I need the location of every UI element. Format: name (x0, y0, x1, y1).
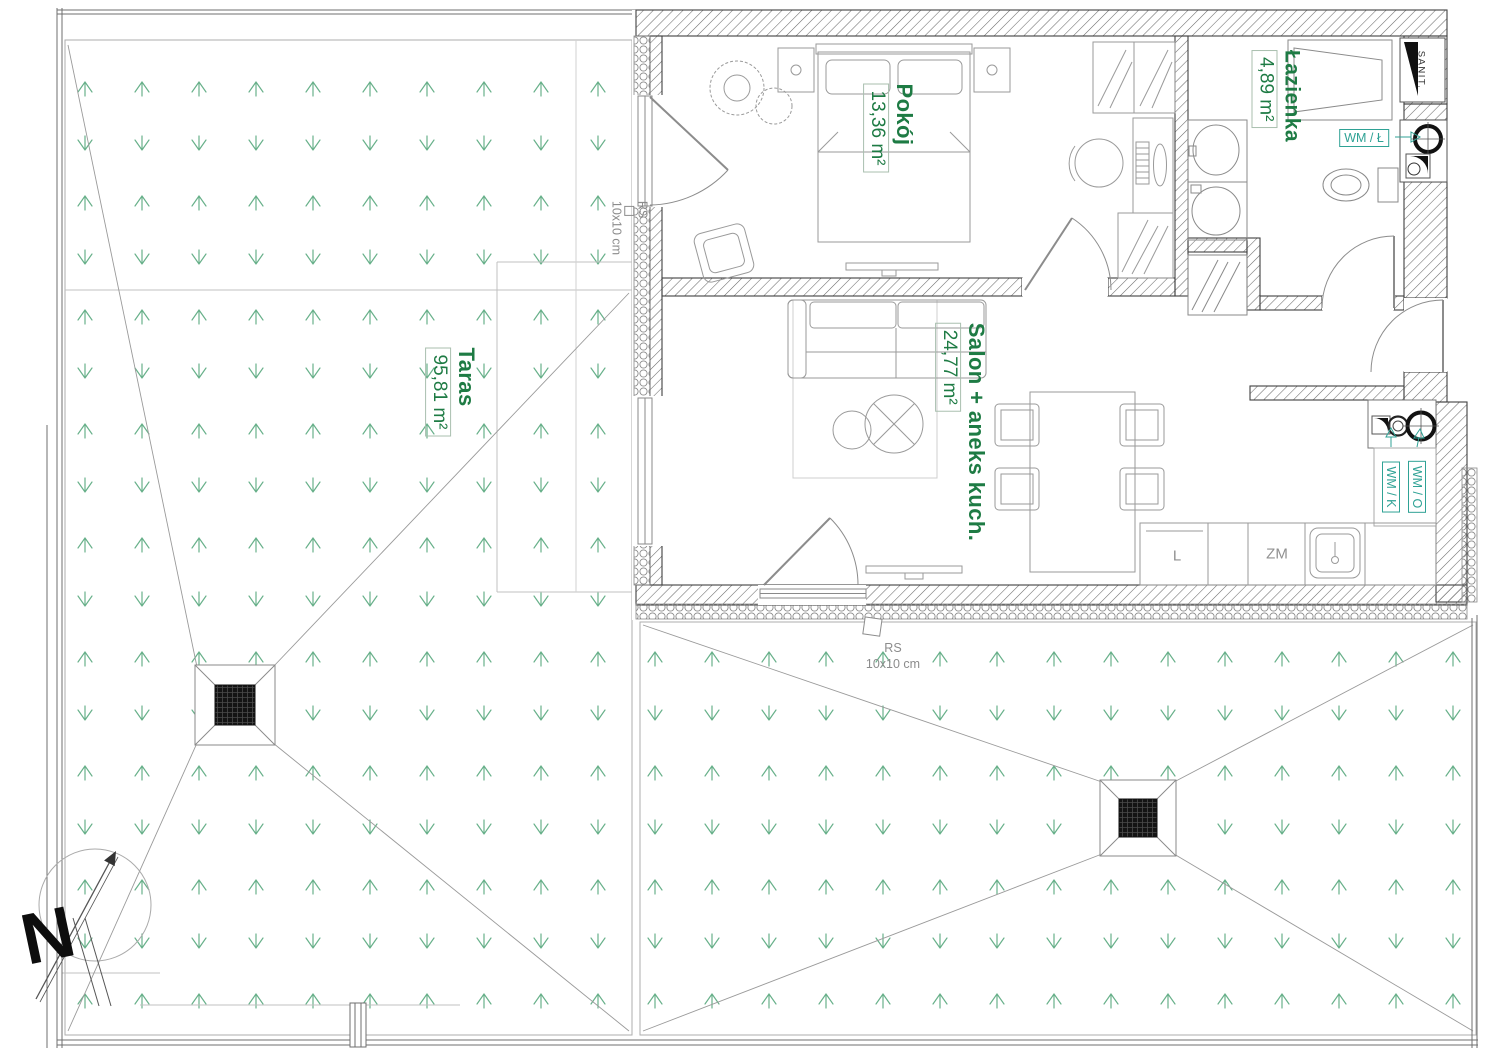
dishwasher-label: ZM (1266, 546, 1288, 563)
rs-drain-squares (863, 617, 882, 636)
room-name: Łazienka (1279, 50, 1304, 142)
sanitary-shaft-label: SANIT. (1416, 51, 1427, 90)
room-label-salon: Salon + aneks kuch. 24,77 m² (935, 323, 989, 542)
kitchen-vents (1368, 400, 1439, 526)
vent-label-wm-o: WM / O (1408, 461, 1426, 513)
vent-label-wm-k: WM / K (1382, 462, 1400, 513)
floorplan-svg (0, 0, 1500, 1050)
room-name: Taras (453, 348, 479, 437)
drain-square-icon (624, 206, 634, 216)
room-name: Pokój (891, 84, 917, 173)
room-label-pokoj: Pokój 13,36 m² (863, 84, 917, 173)
room-name: Salon + aneks kuch. (963, 323, 989, 542)
room-area: 13,36 m² (863, 84, 889, 173)
vent-label-wm-l: WM / Ł (1339, 129, 1389, 147)
room-label-lazienka: Łazienka 4,89 m² (1252, 50, 1305, 142)
bathroom-vent (1400, 120, 1447, 182)
room-area: 4,89 m² (1252, 50, 1278, 128)
room-area: 95,81 m² (425, 348, 451, 437)
floor-plan: Pokój 13,36 m² Łazienka 4,89 m² Salon + … (0, 0, 1500, 1050)
terrace-drain (1100, 780, 1176, 856)
rs-drain-note-top: RS 10x10 cm (608, 201, 651, 255)
fridge-label: L (1173, 548, 1181, 565)
room-label-taras: Taras 95,81 m² (425, 348, 479, 437)
rs-drain-note-bottom: RS 10x10 cm (866, 640, 920, 673)
terrace-drain (195, 665, 275, 745)
room-area: 24,77 m² (935, 323, 961, 412)
terrace-bottom (640, 622, 1476, 1035)
